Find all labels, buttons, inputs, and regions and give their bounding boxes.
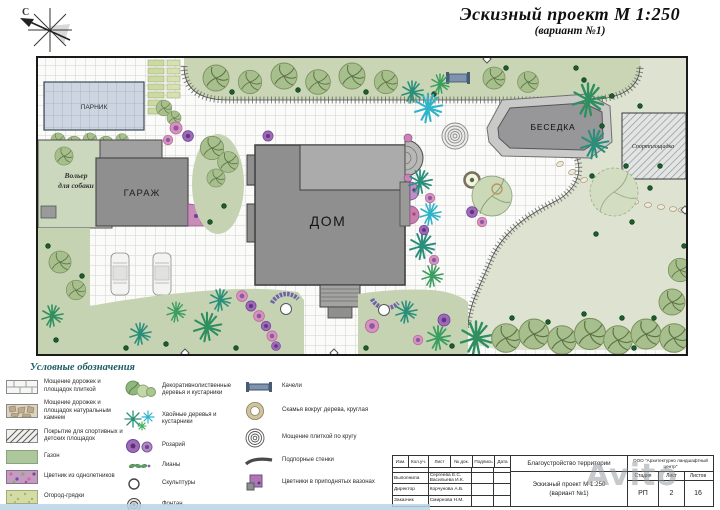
legend-item: Качели — [244, 379, 378, 395]
circular-paving-icon — [244, 427, 282, 449]
oval-lawn-island — [192, 134, 244, 234]
annual-flowerbed-swatch — [6, 470, 44, 484]
left-lawn — [38, 228, 90, 354]
deciduous-trees-icon — [124, 379, 162, 401]
rosary-icon — [124, 437, 162, 455]
drawing-title-line1: Эскизный проект М 1:250 — [424, 4, 716, 25]
legend-item: Подпорные стенки — [244, 455, 378, 467]
swing-icon — [244, 379, 282, 395]
raised-planters-icon — [244, 473, 282, 493]
stone-paving-swatch — [6, 404, 44, 418]
title-block-header-row: Изм. Кол.уч. Лист № док. Подпись Дата — [393, 456, 510, 468]
sculpture-right — [379, 305, 390, 316]
bottom-lawn-right — [358, 290, 468, 355]
tile-paving-swatch — [6, 380, 44, 394]
site-plan: ПАРНИК — [36, 56, 688, 356]
lianas-icon — [124, 461, 162, 471]
gazebo-label: БЕСЕДКА — [530, 122, 575, 132]
greenhouse-label: ПАРНИК — [81, 104, 108, 111]
vegetable-beds-swatch — [6, 490, 44, 504]
legend-item: Мощение дорожек и площадок плиткой — [6, 379, 124, 394]
legend-item: Цветник из однолетников — [6, 470, 124, 484]
circular-paving — [442, 123, 468, 149]
col-list: Лист — [429, 456, 451, 467]
house-label: ДОМ — [310, 213, 347, 229]
col-data: Дата — [495, 456, 510, 467]
sheet: С Эскизный проект М 1:250 (вариант №1) — [0, 0, 720, 510]
bottom-edge-strip — [0, 504, 430, 510]
legend-item: Мощение дорожек и площадок натуральным к… — [6, 400, 124, 423]
lawn-swatch — [6, 450, 44, 464]
watermark: Avito — [586, 458, 678, 493]
dog-house — [41, 206, 56, 218]
compass-rose: С — [12, 4, 78, 58]
greenhouse: ПАРНИК — [44, 82, 144, 130]
legend-item: Скамья вокруг дерева, круглая — [244, 401, 378, 421]
legend-column-1: Мощение дорожек и площадок плиткой Мощен… — [6, 379, 124, 510]
col-izm: Изм. — [393, 456, 409, 467]
legend-item: Огород-грядки — [6, 490, 124, 504]
retaining-walls-icon — [244, 455, 282, 467]
legend-item: Мощение плиткой по кругу — [244, 427, 378, 449]
compass-north-label: С — [22, 7, 29, 18]
col-kol: Кол.уч. — [409, 456, 429, 467]
conifer-trees-icon — [124, 407, 162, 431]
sports-ground: Спортплощадка — [622, 113, 686, 179]
sheet-variant: (вариант №1) — [549, 489, 588, 498]
legend-item: Декоративнолиственные деревья и кустарни… — [124, 379, 242, 401]
legend-header: Условные обозначения — [30, 362, 135, 373]
title-block-left: Изм. Кол.уч. Лист № док. Подпись Дата Вы… — [393, 456, 511, 506]
legend-item: Хвойные деревья и кустарники — [124, 407, 242, 431]
legend-column-3: Качели Скамья вокруг дерева, круглая Мощ… — [244, 379, 378, 499]
col-ndok: № док. — [451, 456, 473, 467]
drawing-title: Эскизный проект М 1:250 (вариант №1) — [424, 4, 716, 37]
legend-item: Розарий — [124, 437, 242, 455]
legend-item: Покрытие для спортивных и детских площад… — [6, 429, 124, 444]
legend-item: Газон — [6, 450, 124, 464]
col-podp: Подпись — [473, 456, 495, 467]
sport-surface-swatch — [6, 429, 44, 443]
legend-item: Скульптуры — [124, 477, 242, 491]
sheet-count: 16 — [685, 481, 711, 506]
legend-item: Лианы — [124, 461, 242, 471]
dog-pen-label-2: для собаки — [58, 181, 94, 190]
legend-item: Цветники в приподнятых вазонах — [244, 473, 378, 493]
drawing-title-line2: (вариант №1) — [424, 25, 716, 37]
dog-pen-label-1: Вольер — [64, 171, 88, 180]
round-bench-icon — [244, 401, 282, 421]
signature-row: Выполнила Сергеева Е.С. Васильева И.К. — [393, 473, 510, 484]
sculpture-left — [281, 304, 292, 315]
garage-label: ГАРАЖ — [124, 188, 161, 199]
legend-column-2: Декоративнолиственные деревья и кустарни… — [124, 379, 242, 510]
signature-row: Директор Корчунова А.Б. — [393, 484, 510, 495]
sports-label: Спортплощадка — [632, 143, 674, 150]
sculptures-icon — [124, 477, 162, 491]
